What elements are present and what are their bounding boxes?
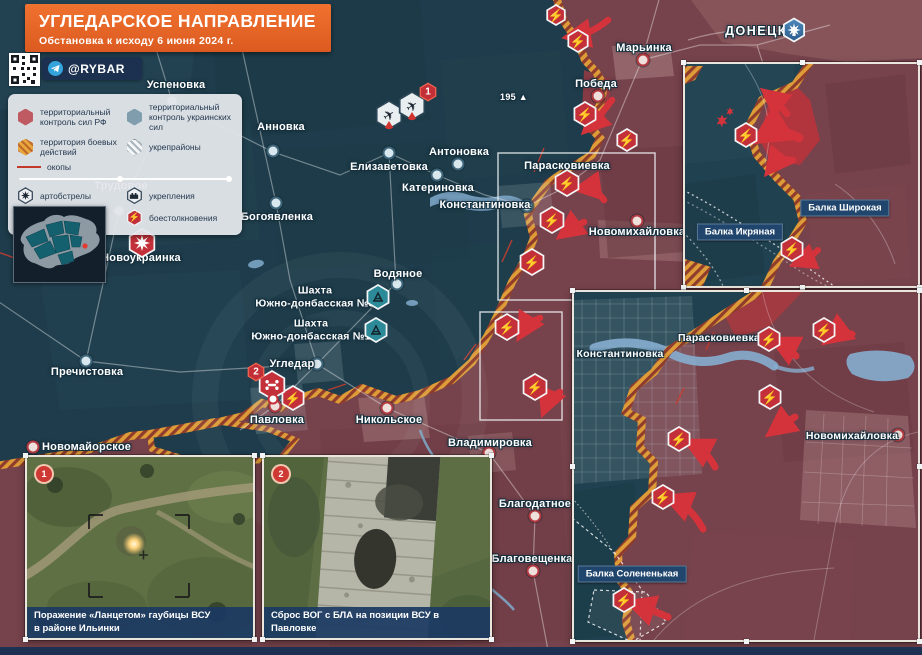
channel-badge: @RYBAR [42, 57, 142, 80]
town-label: Водяное [374, 268, 423, 280]
frame-handle [260, 453, 265, 458]
town-label: Никольское [356, 414, 423, 426]
town-dot [270, 197, 283, 210]
photo-inset-2: 2 Сброс ВОГ с БЛА на позиции ВСУ в Павло… [262, 455, 492, 640]
clashes-swatch [126, 209, 143, 226]
rf-control-swatch [17, 109, 34, 126]
trench-line-swatch [17, 166, 41, 168]
frame-handle [570, 464, 575, 469]
frame-handle [917, 288, 922, 293]
town-dot [267, 145, 280, 158]
town-label: Новомихайловка [589, 226, 686, 238]
area-label-balka-shirokaya: Балка Широкая [800, 200, 889, 217]
telegram-icon [48, 61, 63, 76]
frame-handle [23, 453, 28, 458]
legend-label: артобстрелы [40, 191, 91, 201]
town-dot [529, 510, 542, 523]
title-banner: УГЛЕДАРСКОЕ НАПРАВЛЕНИЕ Обстановка к исх… [25, 4, 331, 52]
legend-label: укрепления [149, 191, 195, 201]
frame-handle [744, 288, 749, 293]
photo-caption: Поражение «Ланцетом» гаубицы ВСУ в район… [27, 607, 253, 638]
minimap-artwork [14, 207, 103, 280]
legend-item-trenches: окопы [17, 162, 233, 172]
town-label: Благовещенка [492, 553, 573, 565]
frame-handle [489, 637, 494, 642]
frame-handle [260, 637, 265, 642]
legend-divider [19, 178, 231, 180]
town-dot [381, 402, 394, 415]
map-canvas: Успеновка Анновка Трудовое Елизаветовка … [0, 0, 922, 655]
impact-dot [268, 394, 279, 405]
town-label: Угледар [270, 358, 315, 370]
legend-item-clashes: боестолкновения [126, 209, 233, 226]
area-label-balka-solenenkaya: Балка Солененькая [578, 566, 687, 583]
town-label: Благодатное [499, 498, 571, 510]
drone-glyph [263, 376, 281, 394]
frame-handle [570, 639, 575, 644]
frame-handle [917, 639, 922, 644]
town-dot [431, 169, 444, 182]
date-subtitle: Обстановка к исходу 6 июня 2024 г. [39, 35, 331, 47]
fortifications-swatch [126, 187, 143, 204]
page-title: УГЛЕДАРСКОЕ НАПРАВЛЕНИЕ [39, 11, 331, 32]
frame-handle [489, 453, 494, 458]
town-label: Пречистовка [51, 366, 123, 378]
burst-glyph [787, 23, 802, 38]
burst-glyph [134, 235, 150, 251]
frame-handle [800, 60, 805, 65]
legend-item-fortifications: укрепления [126, 187, 233, 204]
warning-triangle-icon [407, 112, 417, 120]
town-dot [637, 54, 650, 67]
channel-name: @RYBAR [68, 62, 125, 76]
mine-label-3: Шахта Южно-донбасская №3 [255, 284, 374, 309]
town-dot [27, 441, 40, 454]
fortified-areas-swatch [126, 139, 143, 156]
town-label: Анновка [257, 121, 305, 133]
frame-handle [252, 453, 257, 458]
legend-item-ua-control: территориальный контроль украинских сил [126, 102, 233, 132]
inset-br-artwork [574, 292, 918, 640]
city-label-donetsk: ДОНЕЦК [725, 24, 787, 38]
location-dot [82, 243, 87, 248]
legend-label: боестолкновения [149, 213, 217, 223]
town-label: Константиновка [439, 199, 530, 211]
photo-caption: Сброс ВОГ с БЛА на позиции ВСУ в Павловк… [264, 607, 490, 638]
mine-label-1: Шахта Южно-донбасская №1 [251, 317, 370, 342]
elevation-marker: 195 ▲ [500, 92, 528, 102]
legend-item-fortified-areas: укрепрайоны [126, 137, 233, 157]
combat-zone-swatch [17, 139, 34, 156]
warning-triangle-icon [384, 121, 394, 129]
inset-map-bottom-right: Константиновка Парасковиевка Новомихайло… [572, 290, 920, 642]
frame-handle [23, 637, 28, 642]
legend-label: территориальный контроль сил РФ [40, 107, 118, 127]
town-label: Павловка [250, 414, 304, 426]
legend-label: окопы [47, 162, 71, 172]
photo-inset-1: 1 Поражение «Ланцетом» гаубицы ВСУ в рай… [25, 455, 255, 640]
mine-glyph [371, 290, 385, 304]
qr-pattern [9, 53, 40, 86]
inset-map-top-right: Балка Широкая Балка Икряная [683, 62, 920, 288]
mine-glyph [369, 323, 383, 337]
frame-handle [917, 60, 922, 65]
town-dot [592, 90, 605, 103]
frame-handle [744, 639, 749, 644]
frame-handle [570, 288, 575, 293]
legend-item-artillery: артобстрелы [17, 187, 118, 204]
town-dot [383, 147, 396, 160]
town-label: Константиновка [576, 348, 663, 360]
legend-label: территориальный контроль украинских сил [149, 102, 233, 132]
legend-item-rf-control: территориальный контроль сил РФ [17, 102, 118, 132]
town-label: Богоявленка [241, 211, 313, 223]
town-label: Новомихайловка [806, 430, 898, 442]
town-dot [452, 158, 465, 171]
town-label: Новомайорское [42, 441, 131, 453]
legend-item-combat-zone: территория боевых действий [17, 137, 118, 157]
legend-label: территория боевых действий [40, 137, 118, 157]
qr-code [9, 53, 40, 86]
town-label: Марьинка [616, 42, 672, 54]
legend-label: укрепрайоны [149, 142, 201, 152]
ua-control-swatch [126, 109, 143, 126]
town-label: Антоновка [429, 146, 489, 158]
frame-handle [917, 464, 922, 469]
artillery-swatch [17, 187, 34, 204]
town-label: Владимировка [448, 437, 532, 449]
ukraine-minimap [13, 206, 106, 283]
town-label: Парасковиевка [678, 332, 760, 344]
town-label: Елизаветовка [350, 161, 428, 173]
bottom-bar [0, 647, 922, 655]
frame-handle [681, 60, 686, 65]
town-label: Успеновка [147, 79, 206, 91]
photo-badge: 2 [271, 464, 291, 484]
town-label: Победа [575, 78, 617, 90]
town-label: Катериновка [402, 182, 474, 194]
area-label-balka-ikryanaya: Балка Икряная [697, 224, 783, 241]
photo-badge: 1 [34, 464, 54, 484]
town-dot [527, 565, 540, 578]
frame-handle [252, 637, 257, 642]
